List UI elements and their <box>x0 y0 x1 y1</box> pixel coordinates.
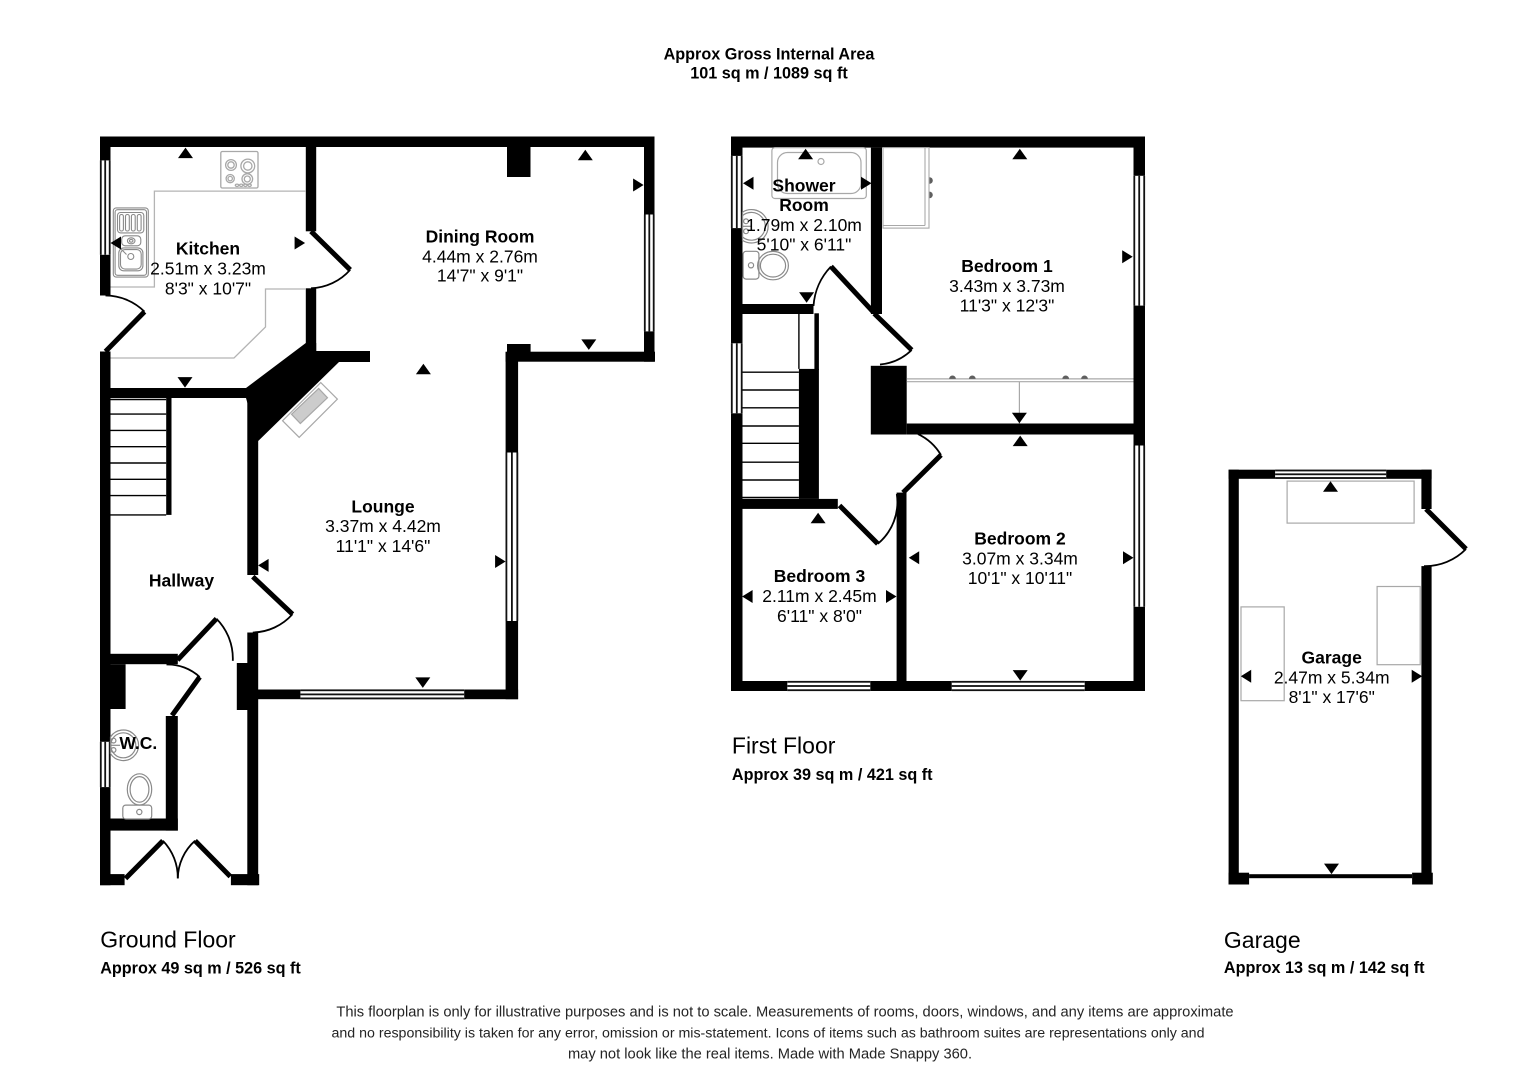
svg-text:Approx 13 sq m / 142 sq ft: Approx 13 sq m / 142 sq ft <box>1224 959 1425 977</box>
svg-text:Approx Gross Internal Area: Approx Gross Internal Area <box>664 46 876 64</box>
svg-text:1.79m x 2.10m: 1.79m x 2.10m <box>746 215 862 235</box>
svg-text:14'7" x 9'1": 14'7" x 9'1" <box>437 266 523 286</box>
svg-text:Hallway: Hallway <box>149 571 214 591</box>
svg-text:Bedroom 3: Bedroom 3 <box>774 566 866 586</box>
svg-text:6'11" x 8'0": 6'11" x 8'0" <box>777 606 862 626</box>
svg-text:2.51m x 3.23m: 2.51m x 3.23m <box>150 258 266 278</box>
svg-text:Garage: Garage <box>1302 648 1363 668</box>
svg-text:Approx 39 sq m / 421 sq ft: Approx 39 sq m / 421 sq ft <box>732 766 933 784</box>
svg-text:may not look like the real ite: may not look like the real items. Made w… <box>568 1047 972 1063</box>
svg-text:5'10" x 6'11": 5'10" x 6'11" <box>757 235 852 255</box>
svg-text:Room: Room <box>779 195 829 215</box>
svg-text:Ground Floor: Ground Floor <box>100 927 236 953</box>
svg-text:3.43m x 3.73m: 3.43m x 3.73m <box>949 276 1065 296</box>
svg-text:Kitchen: Kitchen <box>176 238 240 258</box>
svg-text:Garage: Garage <box>1224 927 1301 953</box>
svg-text:Shower: Shower <box>772 175 835 195</box>
svg-text:10'1" x 10'11": 10'1" x 10'11" <box>968 568 1072 588</box>
svg-text:This floorplan is only for ill: This floorplan is only for illustrative … <box>336 1005 1233 1021</box>
svg-text:Bedroom 2: Bedroom 2 <box>974 529 1066 549</box>
svg-text:Bedroom 1: Bedroom 1 <box>961 256 1053 276</box>
svg-text:8'1" x 17'6": 8'1" x 17'6" <box>1289 687 1375 707</box>
svg-text:4.44m x 2.76m: 4.44m x 2.76m <box>422 246 538 266</box>
svg-text:3.07m x 3.34m: 3.07m x 3.34m <box>962 548 1078 568</box>
svg-text:W.C.: W.C. <box>119 733 157 753</box>
svg-text:3.37m x 4.42m: 3.37m x 4.42m <box>325 516 441 536</box>
svg-text:Lounge: Lounge <box>351 497 414 517</box>
svg-text:101 sq m / 1089 sq ft: 101 sq m / 1089 sq ft <box>690 65 848 83</box>
svg-text:11'3" x 12'3": 11'3" x 12'3" <box>960 296 1055 316</box>
svg-text:11'1" x 14'6": 11'1" x 14'6" <box>336 536 431 556</box>
svg-text:Approx 49 sq m / 526 sq ft: Approx 49 sq m / 526 sq ft <box>100 959 301 977</box>
svg-text:2.47m x 5.34m: 2.47m x 5.34m <box>1274 667 1390 687</box>
svg-text:First Floor: First Floor <box>732 732 836 758</box>
svg-text:8'3" x 10'7": 8'3" x 10'7" <box>165 279 251 299</box>
svg-text:2.11m x 2.45m: 2.11m x 2.45m <box>762 586 876 606</box>
svg-text:and no responsibility is taken: and no responsibility is taken for any e… <box>332 1026 1205 1042</box>
svg-text:Dining Room: Dining Room <box>426 227 535 247</box>
